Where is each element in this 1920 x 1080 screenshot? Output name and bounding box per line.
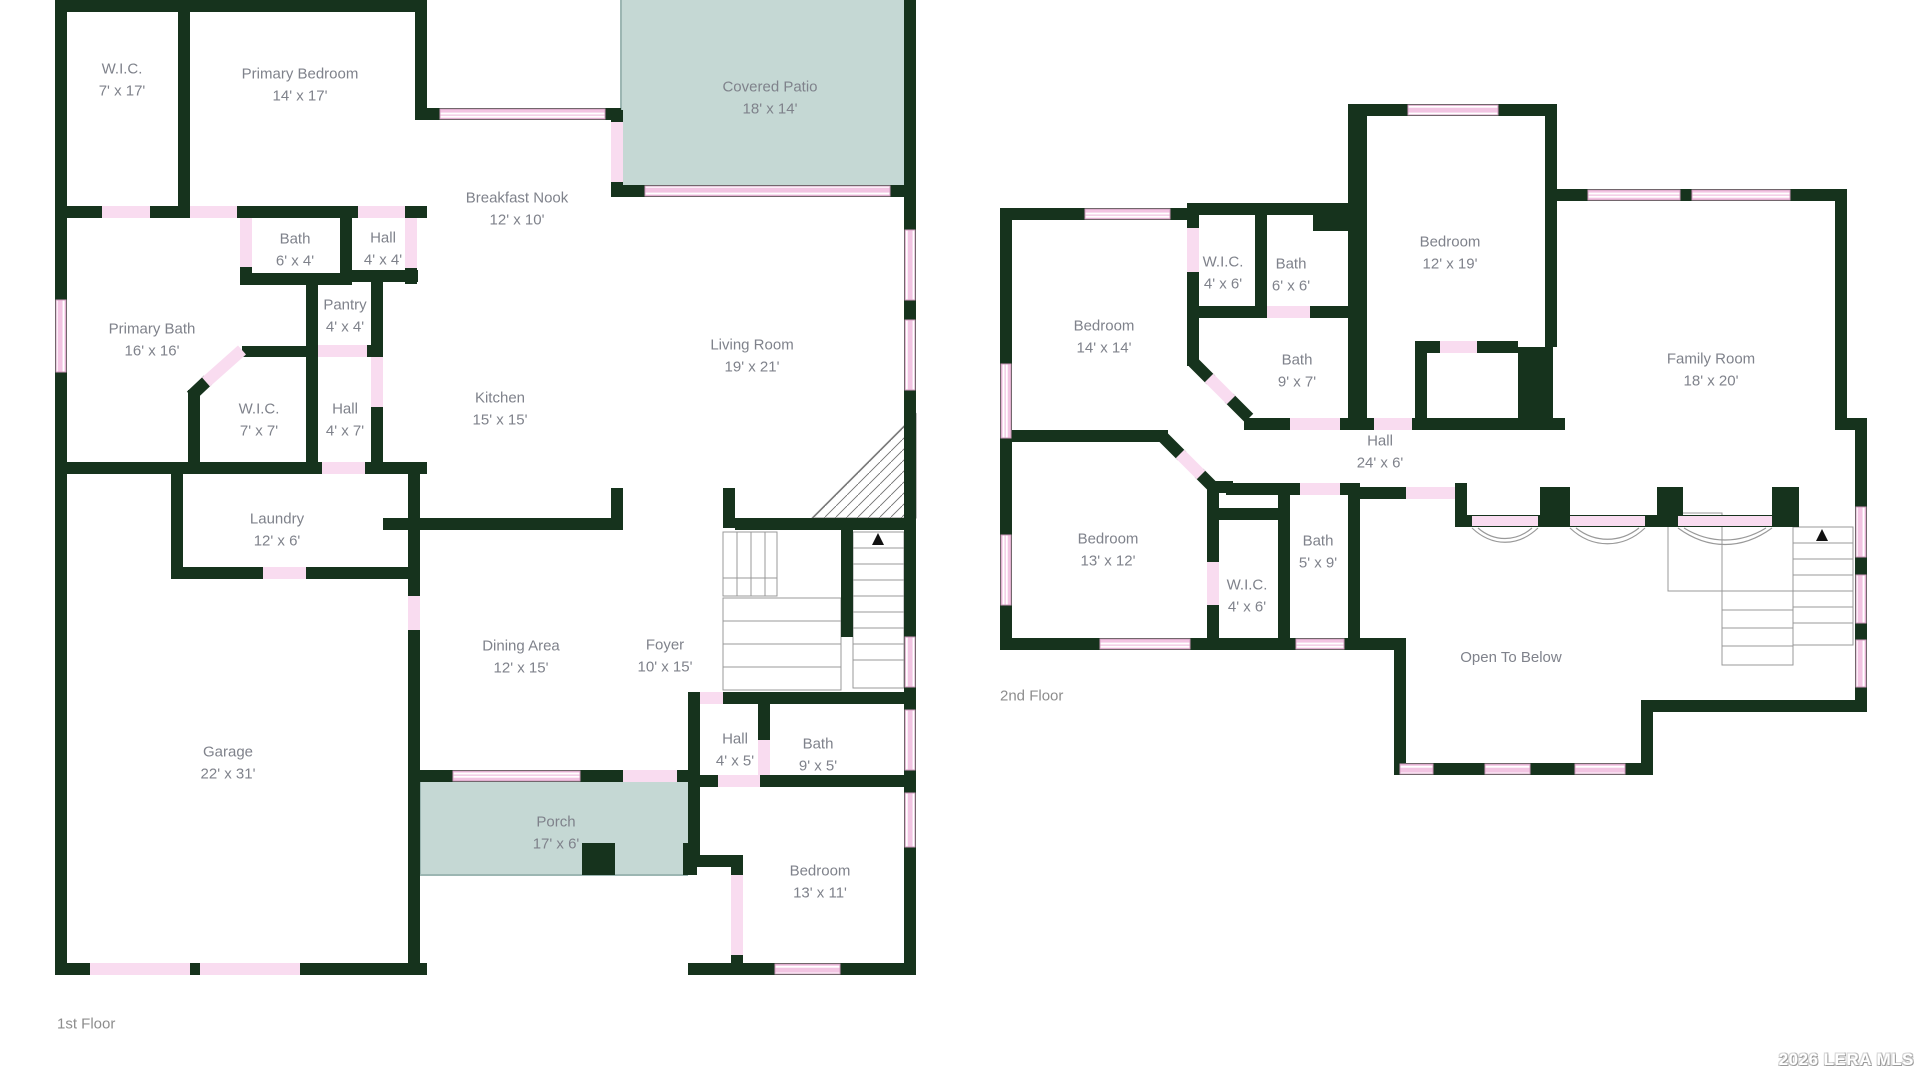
- room-label-bedroom-14x14: Bedroom14' x 14': [1074, 315, 1135, 359]
- walls: [55, 0, 1867, 975]
- bay-window-arcs: [1472, 528, 1772, 545]
- room-label-primary-bath: Primary Bath16' x 16': [109, 318, 196, 362]
- room-label-hall-4x4: Hall4' x 4': [364, 227, 402, 271]
- room-label-foyer: Foyer10' x 15': [638, 634, 693, 678]
- floorplan-page: W.I.C.7' x 17' Primary Bedroom14' x 17' …: [0, 0, 1920, 1080]
- mls-watermark: 2026 LERA MLS: [1779, 1050, 1914, 1070]
- room-label-hall-4x5: Hall4' x 5': [716, 728, 754, 772]
- room-label-pantry: Pantry4' x 4': [323, 294, 366, 338]
- floor-label-2nd: 2nd Floor: [1000, 688, 1063, 705]
- room-label-wic-2: W.I.C.7' x 7': [239, 398, 280, 442]
- room-label-dining-area: Dining Area12' x 15': [482, 635, 560, 679]
- room-label-garage: Garage22' x 31': [201, 741, 256, 785]
- room-label-bath-6x6: Bath6' x 6': [1272, 253, 1310, 297]
- floor-label-1st: 1st Floor: [57, 1016, 115, 1033]
- stairs-first-floor: [723, 414, 916, 690]
- room-label-bedroom-13x12: Bedroom13' x 12': [1078, 528, 1139, 572]
- room-label-wic-4x6-top: W.I.C.4' x 6': [1203, 251, 1244, 295]
- room-label-bath-5x9: Bath5' x 9': [1299, 530, 1337, 574]
- room-label-living-room: Living Room19' x 21': [710, 334, 793, 378]
- room-label-bath-9x5: Bath9' x 5': [799, 733, 837, 777]
- windows: [56, 105, 1866, 974]
- room-label-breakfast-nook: Breakfast Nook12' x 10': [466, 187, 569, 231]
- room-label-wic-4x6-bottom: W.I.C.4' x 6': [1227, 574, 1268, 618]
- room-label-bedroom-12x19: Bedroom12' x 19': [1420, 231, 1481, 275]
- room-label-covered-patio: Covered Patio18' x 14': [722, 76, 817, 120]
- room-label-wic-1: W.I.C.7' x 17': [99, 58, 146, 102]
- room-label-laundry: Laundry12' x 6': [250, 508, 304, 552]
- room-label-open-to-below: Open To Below: [1460, 647, 1561, 669]
- room-label-family-room: Family Room18' x 20': [1667, 348, 1755, 392]
- room-label-hall-4x7: Hall4' x 7': [326, 398, 364, 442]
- room-label-kitchen: Kitchen15' x 15': [473, 387, 528, 431]
- room-label-porch: Porch17' x 6': [533, 811, 580, 855]
- room-label-bath-6x4: Bath6' x 4': [276, 228, 314, 272]
- room-label-bedroom-13x11: Bedroom13' x 11': [790, 860, 851, 904]
- room-label-primary-bedroom: Primary Bedroom14' x 17': [242, 63, 359, 107]
- room-label-bath-9x7: Bath9' x 7': [1278, 349, 1316, 393]
- room-label-hall-24x6: Hall24' x 6': [1357, 430, 1404, 474]
